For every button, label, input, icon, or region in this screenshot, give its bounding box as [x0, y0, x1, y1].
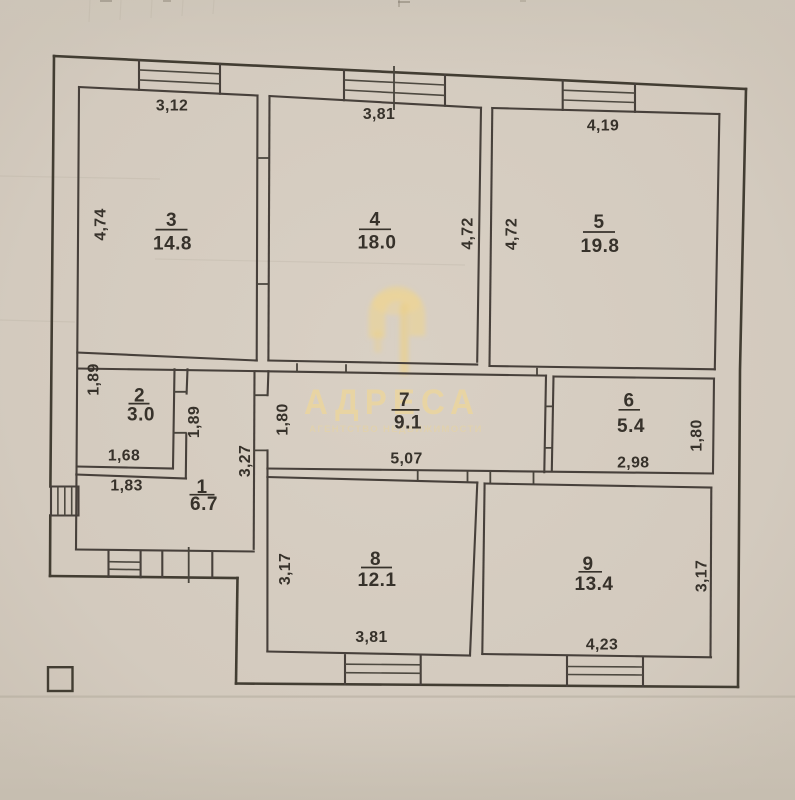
svg-text:3,81: 3,81: [363, 106, 395, 123]
svg-text:8: 8: [370, 549, 381, 570]
svg-text:4,19: 4,19: [587, 117, 619, 134]
svg-text:19.8: 19.8: [581, 236, 620, 257]
svg-text:3: 3: [166, 210, 177, 231]
svg-text:2,98: 2,98: [617, 454, 649, 471]
svg-text:4,72: 4,72: [459, 217, 476, 249]
svg-text:3,17: 3,17: [693, 560, 710, 592]
svg-text:6: 6: [623, 391, 634, 412]
svg-text:12.1: 12.1: [358, 570, 397, 591]
svg-text:14.8: 14.8: [153, 234, 192, 255]
svg-text:4,74: 4,74: [92, 208, 109, 240]
svg-text:4: 4: [369, 210, 380, 231]
svg-text:4,23: 4,23: [586, 636, 618, 653]
svg-text:1,83: 1,83: [110, 477, 142, 494]
svg-text:АДРЕСА: АДРЕСА: [304, 383, 480, 422]
svg-text:3,17: 3,17: [277, 553, 294, 585]
svg-text:6.7: 6.7: [190, 494, 218, 515]
svg-text:5: 5: [593, 212, 604, 233]
svg-text:4,72: 4,72: [503, 218, 520, 250]
svg-text:1,89: 1,89: [86, 363, 103, 395]
svg-text:3,27: 3,27: [237, 445, 254, 477]
svg-text:7: 7: [399, 390, 410, 411]
svg-text:3.0: 3.0: [127, 404, 155, 425]
svg-text:5,07: 5,07: [390, 450, 422, 467]
svg-text:1,80: 1,80: [688, 419, 705, 451]
svg-text:3,81: 3,81: [355, 629, 387, 646]
svg-text:1,89: 1,89: [186, 406, 203, 438]
svg-text:13.4: 13.4: [575, 574, 614, 595]
svg-text:5.4: 5.4: [617, 416, 645, 437]
svg-text:18.0: 18.0: [358, 233, 397, 254]
svg-text:1,80: 1,80: [274, 403, 291, 435]
svg-text:1,68: 1,68: [108, 447, 140, 464]
svg-text:3,12: 3,12: [156, 97, 188, 114]
svg-text:9.1: 9.1: [394, 412, 422, 433]
